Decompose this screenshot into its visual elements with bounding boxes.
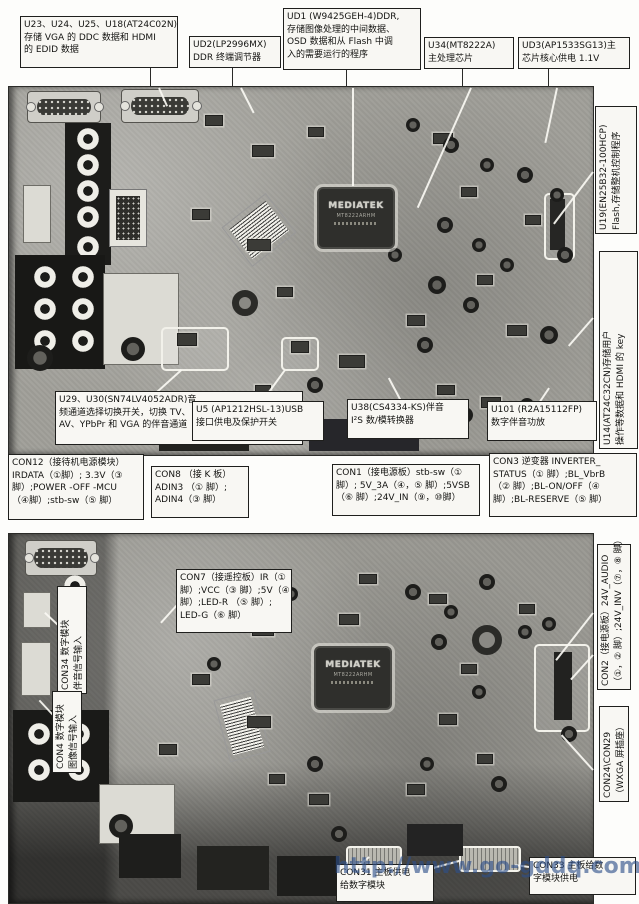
callout-text-line: 存储 VGA 的 DDC 数据和 HDMI: [24, 32, 174, 45]
pcb-component-cap: [500, 258, 514, 272]
dsub-screw: [26, 102, 36, 112]
leader-line: [156, 369, 182, 393]
callout-u101: U101 (R2A15112FP)数字伴音功放: [487, 401, 597, 441]
pcb-component-chip: [308, 127, 324, 137]
pcb-component-chip: [177, 333, 197, 346]
pcb-component-cap: [406, 118, 420, 132]
pcb-component-chip: [269, 774, 285, 784]
callout-u23: U23、U24、U25、U18(AT24C02N)存储 VGA 的 DDC 数据…: [20, 16, 178, 68]
pcb-component-chip: [407, 784, 425, 795]
pcb-component-jack: [77, 180, 99, 202]
pcb-component-cap: [550, 188, 564, 202]
callout-text-line: UD3(AP1533SG13)主: [522, 40, 626, 53]
pcb-component-chip: [507, 325, 527, 336]
callout-text-line: 伴音信号输入: [73, 590, 86, 690]
callout-text-line: U38(CS4334-KS)伴音: [351, 402, 465, 415]
pcb-component-jack: [72, 266, 94, 288]
callout-text-line: IRDATA（①脚）; 3.3V（③: [12, 470, 140, 483]
pcb-component-cap: [472, 238, 486, 252]
dsub-screw: [192, 101, 202, 111]
callout-text-line: U34(MT8222A): [428, 40, 510, 53]
callout-text-line: U5 (AP1212HSL-13)USB: [196, 404, 320, 417]
pcb-component-cap: [121, 337, 145, 361]
callout-text-line: 芯片核心供电 1.1V: [522, 53, 626, 66]
pcb-component-chip: [477, 754, 493, 764]
callout-text-line: 操作等数据和 HDMI 的 key: [615, 255, 628, 445]
pcb-component-chip: [359, 574, 377, 584]
callout-text-line: CON1（接电源板）stb-sw（①: [336, 467, 476, 480]
dsub-pins: [34, 548, 87, 567]
pcb-component-chip: [439, 714, 457, 725]
callout-text-line: UD2(LP2996MX): [193, 39, 277, 52]
mediatek-logo: MEDIATEK: [319, 201, 393, 211]
callout-text-line: CON4 数字模块: [55, 695, 68, 769]
callout-text-line: CON7（接遥控板）IR（①: [180, 572, 288, 585]
callout-text-line: LED-G（⑥ 脚）: [180, 610, 288, 623]
pcb-component-cap: [27, 345, 53, 371]
pcb-component-sticker: [222, 193, 297, 267]
pcb-component-rect: [197, 846, 269, 890]
mediatek-logo: MEDIATEK: [316, 660, 390, 670]
callout-u5: U5 (AP1212HSL-13)USB接口供电及保护开关: [192, 401, 324, 441]
pcb-component-chip: [205, 115, 223, 126]
dsub-pins: [131, 97, 189, 115]
pcb-component-chip: [461, 187, 477, 197]
pcb-component-cap: [431, 634, 447, 650]
main-processor-chip: MEDIATEK MT8222ARHM: [317, 187, 395, 249]
pcb-component-chip: [247, 239, 271, 251]
callout-text-line: U19(EN25B32-100HCP): [598, 110, 611, 230]
leader-line: [240, 88, 254, 114]
pcb-component-cap: [542, 617, 556, 631]
leader-line: [462, 69, 463, 86]
pcb-component-cap: [417, 337, 433, 353]
callout-text-line: CON2（接电源板）24V_AUDIO: [600, 548, 613, 686]
leader-line: [150, 68, 151, 86]
callout-text-line: STATUS（① 脚）;BL_VbrB: [493, 469, 633, 482]
leader-line: [346, 70, 347, 86]
callout-text-line: I²S 数/模转换器: [351, 415, 465, 428]
pcb-component-chip: [519, 604, 535, 614]
callout-text-line: 接口供电及保护开关: [196, 417, 320, 430]
callout-con2: CON2（接电源板）24V_AUDIO（①，② 脚）;24V_INV（⑦，⑧ 脚…: [597, 544, 631, 690]
pcb-component-chip: [159, 744, 177, 755]
pcb-component-cap: [420, 757, 434, 771]
callout-con7: CON7（接遥控板）IR（①脚）;VCC（③ 脚）;5V（④脚）;LED-R （…: [176, 569, 292, 633]
dsub-pins: [37, 99, 92, 116]
pcb-component-rect: [277, 856, 339, 896]
callout-text-line: （⑥ 脚）;24V_IN（⑨，⑩脚）: [336, 492, 476, 505]
callout-text-line: 入的需要运行的程序: [287, 49, 417, 62]
pcb-component-rect: [550, 199, 565, 250]
site-watermark: http://www.go-gddq.com: [334, 854, 639, 879]
pcb-component-chip: [461, 664, 477, 674]
pcb-component-chip: [291, 341, 309, 353]
leader-line: [561, 734, 594, 770]
callout-text-line: CON34 数字模块: [60, 590, 73, 690]
pcb-component-cap: [480, 158, 494, 172]
pcb-component-toroid: [472, 625, 502, 655]
pcb-component-chip: [192, 209, 210, 220]
callout-text-line: U101 (R2A15112FP): [491, 404, 593, 417]
pcb-component-jack: [77, 154, 99, 176]
pcb-component-cap: [491, 776, 507, 792]
callout-text-line: 数字伴音功放: [491, 417, 593, 430]
callout-text-line: CON8 （接 K 板）: [155, 469, 245, 482]
pcb-component-dvi: [109, 189, 147, 247]
pcb-component-cap: [472, 685, 486, 699]
callout-text-line: 脚）;POWER -OFF -MCU: [12, 482, 140, 495]
callout-u34: U34(MT8222A)主处理芯片: [424, 37, 514, 69]
leader-line: [232, 66, 233, 86]
chip-marking-blur: [334, 222, 378, 225]
callout-con34: CON34 数字模块伴音信号输入: [57, 586, 87, 694]
callout-text-line: OSD 数据和从 Flash 中调: [287, 36, 417, 49]
callout-text-line: （② 脚）;BL-ON/OFF（④: [493, 481, 633, 494]
callout-text-line: 的 EDID 数据: [24, 44, 174, 57]
pcb-component-jack: [28, 723, 50, 745]
pcb-component-chip: [429, 594, 447, 604]
callout-con4: CON4 数字模块图像信号输入: [52, 691, 82, 773]
callout-con1: CON1（接电源板）stb-sw（①脚）; 5V_3A（④，⑤ 脚）;5VSB（…: [332, 464, 480, 516]
callout-text-line: Flash,存储整机控制程序: [611, 110, 624, 230]
callout-text-line: （WXGA 屏插座）: [615, 710, 628, 798]
callout-text-line: DDR 终端调节器: [193, 52, 277, 65]
callout-text-line: 主处理芯片: [428, 53, 510, 66]
pcb-component-cap: [463, 297, 479, 313]
callout-u38: U38(CS4334-KS)伴音I²S 数/模转换器: [347, 399, 469, 439]
pcb-component-cap: [518, 625, 532, 639]
leader-line: [568, 317, 594, 346]
leader-line: [352, 88, 354, 186]
pcb-component-chip: [309, 794, 329, 805]
callout-ud2: UD2(LP2996MX)DDR 终端调节器: [189, 36, 281, 68]
callout-text-line: （①，② 脚）;24V_INV（⑦，⑧ 脚）: [613, 548, 626, 686]
pcb-component-cap: [207, 657, 221, 671]
pcb-component-chip: [277, 287, 293, 297]
callout-text-line: 脚）;BL-RESERVE（⑤ 脚）: [493, 494, 633, 507]
pcb-component-chip: [339, 355, 365, 368]
pcb-component-chip: [437, 385, 455, 395]
pcb-component-jack: [34, 298, 56, 320]
callout-text-line: （④脚）;stb-sw（⑤ 脚）: [12, 495, 140, 508]
pcb-component-cap: [331, 826, 347, 842]
pcb-component-wrect: [23, 185, 51, 243]
dsub-screw: [120, 101, 130, 111]
mainboard-photo-bottom: MEDIATEK MT8222ARHM: [8, 533, 594, 904]
callout-text-line: 给数字模块: [340, 880, 430, 893]
chip-marking: MT8222ARHM: [319, 213, 393, 219]
pcb-component-cap: [307, 756, 323, 772]
callout-u14: U14(AT24C32CN)存储用户操作等数据和 HDMI 的 key: [599, 251, 638, 449]
callout-u19: U19(EN25B32-100HCP)Flash,存储整机控制程序: [595, 106, 637, 234]
callout-text-line: ADIN4（③ 脚）: [155, 494, 245, 507]
callout-text-line: U23、U24、U25、U18(AT24C02N): [24, 19, 174, 32]
pcb-component-chip: [477, 275, 493, 285]
leader-line: [544, 88, 558, 143]
pcb-component-cap: [437, 217, 453, 233]
callout-text-line: CON12（接待机电源模块）: [12, 457, 140, 470]
callout-text-line: 脚）;VCC（③ 脚）;5V（④: [180, 585, 288, 598]
pcb-component-cap: [307, 377, 323, 393]
leader-line: [388, 378, 402, 402]
dsub-screw: [90, 553, 100, 563]
pcb-component-chip: [247, 716, 271, 728]
pcb-component-chip: [525, 215, 541, 225]
callout-con24-con29: CON24\CON29（WXGA 屏插座）: [599, 706, 629, 802]
main-processor-chip: MEDIATEK MT8222ARHM: [314, 646, 392, 710]
pcb-component-chip: [339, 614, 359, 625]
callout-ud1: UD1 (W9425GEH-4)DDR,存储图像处理的中间数据、OSD 数据和从…: [283, 8, 421, 70]
pcb-component-chip: [252, 145, 274, 157]
pcb-component-jack: [77, 128, 99, 150]
pcb-component-cap: [405, 584, 421, 600]
callout-text-line: CON24\CON29: [602, 710, 615, 798]
callout-text-line: 图像信号输入: [68, 695, 81, 769]
pcb-component-chip: [192, 674, 210, 685]
pcb-component-jack: [77, 206, 99, 228]
pcb-component-rect: [119, 834, 181, 878]
callout-text-line: CON3 逆变器 INVERTER_: [493, 456, 633, 469]
dsub-screw: [94, 102, 104, 112]
callout-con8: CON8 （接 K 板）ADIN3 （① 脚）;ADIN4（③ 脚）: [151, 466, 249, 518]
pcb-component-jack: [72, 330, 94, 352]
pcb-component-cap: [388, 248, 402, 262]
pcb-component-dsub: [27, 91, 101, 123]
pcb-component-wrect: [23, 592, 51, 628]
connector-pins: [116, 196, 139, 241]
callout-text-line: 存储图像处理的中间数据、: [287, 24, 417, 37]
pcb-component-jack: [34, 266, 56, 288]
callout-text-line: U14(AT24C32CN)存储用户: [602, 255, 615, 445]
pcb-component-wrect: [21, 642, 51, 696]
callout-text-line: 脚）;LED-R （⑤ 脚）;: [180, 597, 288, 610]
callout-con3: CON3 逆变器 INVERTER_STATUS（① 脚）;BL_VbrB（② …: [489, 453, 637, 517]
pcb-component-cap: [557, 247, 573, 263]
leader-line: [548, 69, 549, 86]
pcb-component-cap: [517, 167, 533, 183]
pcb-component-rect: [554, 652, 572, 720]
callout-text-line: UD1 (W9425GEH-4)DDR,: [287, 11, 417, 24]
dsub-screw: [24, 553, 34, 563]
callout-text-line: 脚）; 5V_3A（④，⑤ 脚）;5VSB: [336, 480, 476, 493]
manual-page: { "chip": { "logo": "MEDIATEK", "line1":…: [0, 0, 639, 904]
pcb-component-dsub: [25, 540, 97, 576]
callout-ud3: UD3(AP1533SG13)主芯片核心供电 1.1V: [518, 37, 630, 69]
pcb-component-rect: [407, 824, 463, 856]
pcb-component-cap: [428, 276, 446, 294]
pcb-component-jack: [72, 298, 94, 320]
callout-con12: CON12（接待机电源模块）IRDATA（①脚）; 3.3V（③脚）;POWER…: [8, 454, 144, 520]
callout-text-line: ADIN3 （① 脚）;: [155, 482, 245, 495]
pcb-component-cap: [479, 574, 495, 590]
pcb-component-chip: [407, 315, 425, 326]
chip-marking-blur: [331, 681, 375, 684]
pcb-component-cap: [444, 605, 458, 619]
pcb-component-cap: [540, 326, 558, 344]
pcb-component-toroid: [232, 290, 258, 316]
pcb-component-jack: [28, 759, 50, 781]
chip-marking: MT8222ARHM: [316, 672, 390, 678]
